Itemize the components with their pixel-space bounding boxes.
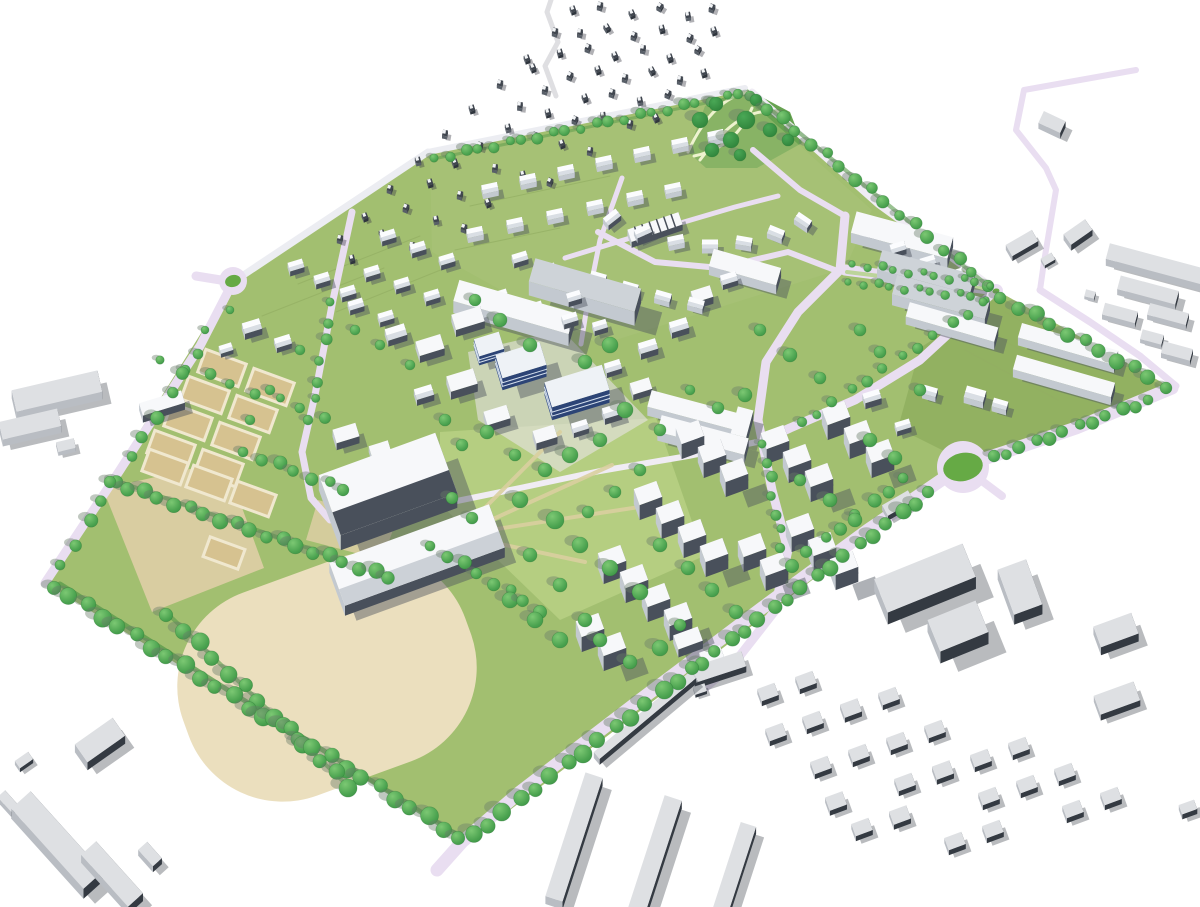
masterplan-render [0, 0, 1200, 907]
masterplan-svg [0, 0, 1200, 907]
